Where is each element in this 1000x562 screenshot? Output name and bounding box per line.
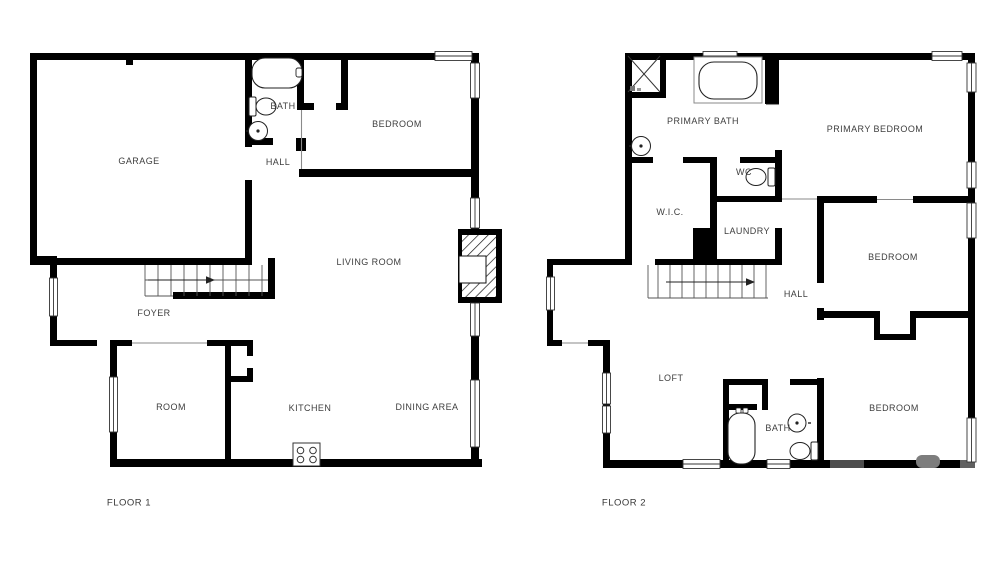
room-label-room: ROOM (156, 402, 186, 412)
staircase-floor1 (145, 265, 268, 296)
room-label-dining-area: DINING AREA (396, 402, 459, 412)
shower-icon (628, 56, 660, 92)
floorplan-drawing (0, 0, 1000, 562)
room-label-kitchen: KITCHEN (289, 403, 332, 413)
floorplan-canvas: GARAGE BATH HALL BEDROOM LIVING ROOM FOY… (0, 0, 1000, 562)
floor2-title: FLOOR 2 (602, 498, 646, 509)
floor1-title: FLOOR 1 (107, 498, 151, 509)
staircase-floor2 (648, 265, 768, 298)
room-label-bath2: BATH (765, 423, 790, 433)
room-label-wc: WC (736, 167, 752, 177)
room-label-primary-bath: PRIMARY BATH (667, 116, 739, 126)
sink-icon (629, 137, 651, 156)
bathtub-icon (694, 57, 762, 103)
toilet-icon (790, 442, 818, 460)
patio-slider (471, 380, 480, 447)
bathtub-icon (728, 408, 755, 464)
room-label-bedroom: BEDROOM (372, 119, 422, 129)
sink-icon (788, 414, 811, 432)
bathtub-icon (252, 58, 302, 88)
room-label-bedroom-mid: BEDROOM (868, 252, 918, 262)
room-label-primary-bedroom: PRIMARY BEDROOM (827, 124, 923, 134)
room-label-hall2: HALL (784, 289, 808, 299)
room-label-bedroom-bottom: BEDROOM (869, 403, 919, 413)
stove-icon (293, 443, 320, 466)
room-label-loft: LOFT (659, 373, 684, 383)
room-label-wic: W.I.C. (656, 207, 683, 217)
room-label-garage: GARAGE (118, 156, 159, 166)
room-label-laundry: LAUNDRY (724, 226, 770, 236)
room-label-bath: BATH (270, 101, 295, 111)
floor2-opening-lines (562, 105, 913, 344)
room-label-living-room: LIVING ROOM (337, 257, 402, 267)
fireplace-icon (458, 229, 502, 303)
room-label-hall: HALL (266, 157, 290, 167)
room-label-foyer: FOYER (137, 308, 170, 318)
